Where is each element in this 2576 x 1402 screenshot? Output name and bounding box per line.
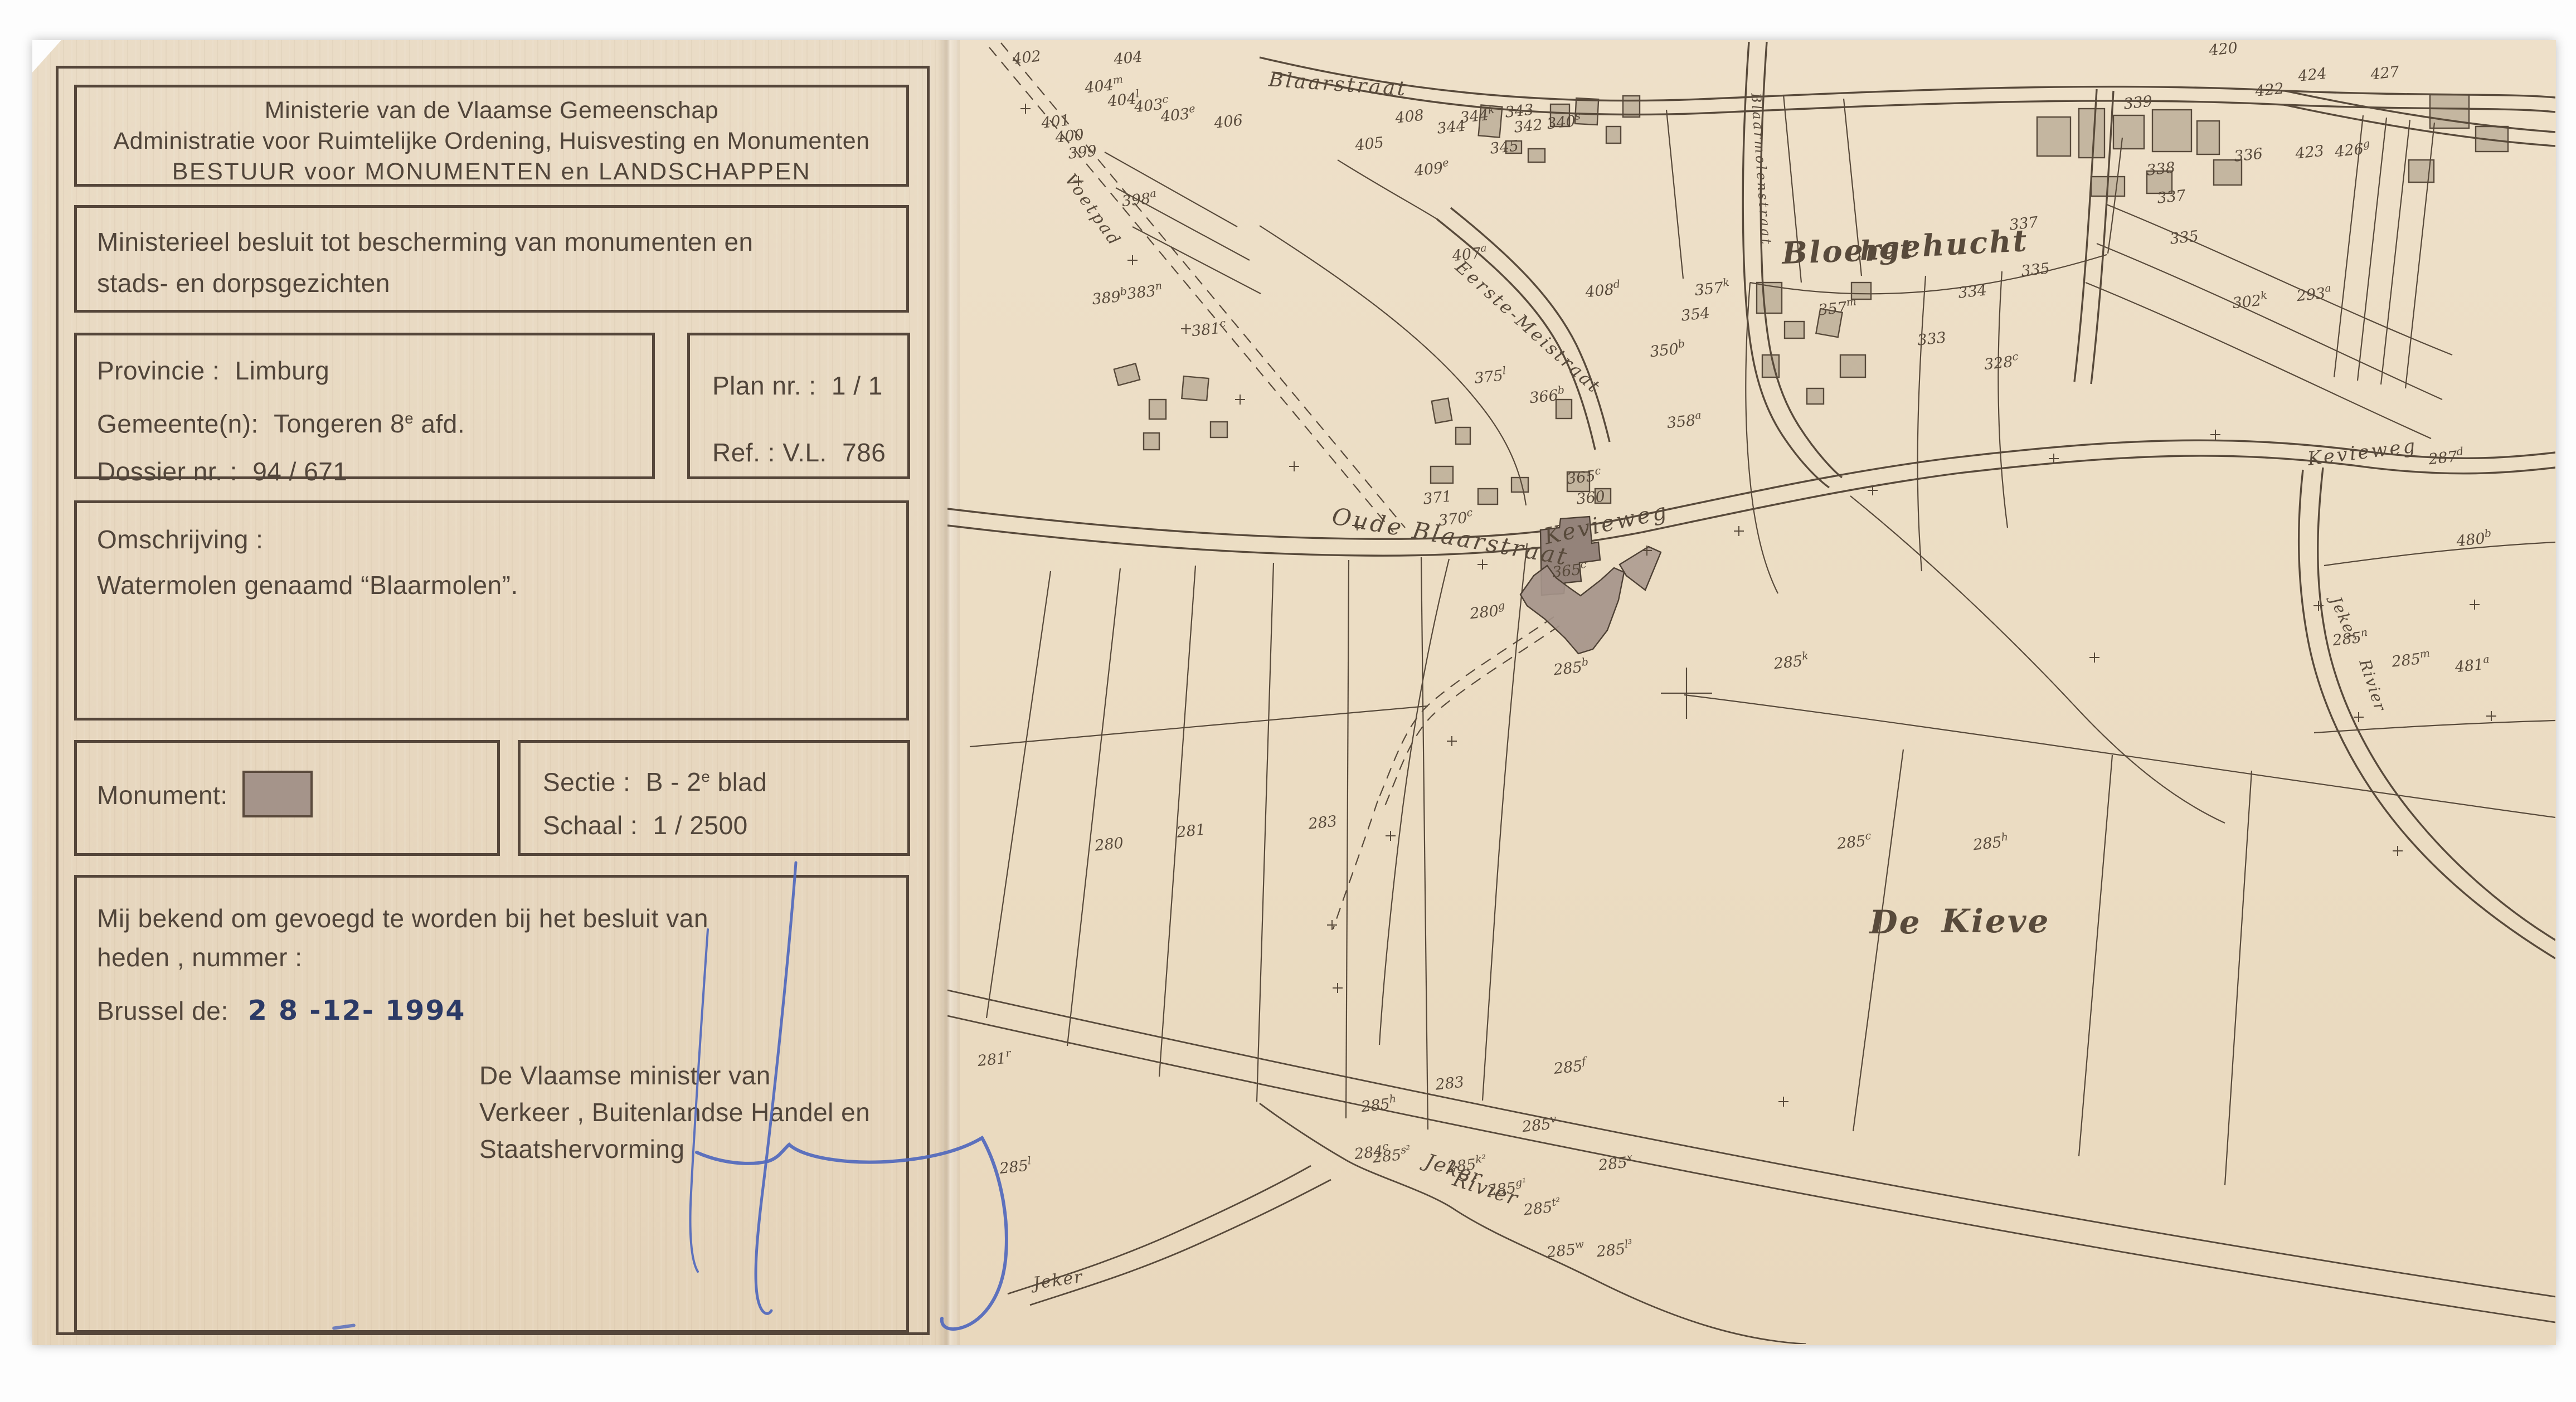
ministry-line1: Ministerie van de Vlaamse Gemeenschap xyxy=(77,95,906,126)
parcel-number: 406 xyxy=(1213,111,1243,132)
brussel-date-row: Brussel de: 2 8 -12- 1994 xyxy=(97,991,906,1030)
parcel-number: 285l³ xyxy=(1595,1238,1634,1261)
sectie-label: Sectie : xyxy=(543,767,630,796)
building-footprint xyxy=(1757,283,1782,313)
parcel-number: 285b xyxy=(1552,656,1590,679)
municipality-row: Gemeente(n): Tongeren 8e afd. xyxy=(97,395,652,447)
building-footprint xyxy=(1114,363,1140,385)
cross-mark xyxy=(1127,255,1138,265)
dossier-row: Dossier nr. : 94 / 671 xyxy=(97,447,652,495)
monument-label: Monument: xyxy=(97,781,228,810)
minister-line3: Staatshervorming xyxy=(479,1131,870,1167)
cross-mark xyxy=(1386,831,1396,841)
building-footprint xyxy=(1762,355,1779,377)
cross-mark xyxy=(1734,526,1744,536)
mill-race-wing xyxy=(1620,547,1661,590)
building-footprint xyxy=(2091,177,2125,196)
river-label: Jeker xyxy=(2325,591,2363,644)
ref-value: 786 xyxy=(842,438,886,467)
cadastral-map: 402404404m404l403c403e406401400399398a38… xyxy=(947,42,2555,1344)
cross-mark xyxy=(1181,324,1191,334)
plan-row: Plan nr. : 1 / 1 xyxy=(712,352,907,419)
place-label: gehucht xyxy=(1878,222,2029,266)
building-footprint xyxy=(1606,126,1621,143)
parcel-number: 424 xyxy=(2297,65,2328,85)
parcel-number: 281r xyxy=(976,1047,1013,1070)
parcel-number: 285w xyxy=(1545,1238,1585,1262)
decree-line1: Ministerieel besluit tot bescherming van… xyxy=(97,221,906,262)
sectie-sup: e xyxy=(701,768,710,785)
parcel-number: 328c xyxy=(1983,350,2020,373)
plan-box: Plan nr. : 1 / 1 Ref. : V.L. 786 xyxy=(687,333,910,479)
plan-label: Plan nr. : xyxy=(712,371,816,400)
parcel-number: 354 xyxy=(1680,304,1711,324)
municipality-suffix: afd. xyxy=(421,409,465,438)
parcel-number: 375l xyxy=(1473,364,1507,387)
province-label: Provincie : xyxy=(97,356,220,385)
building-footprint xyxy=(1144,433,1159,450)
parcel-number: 285k xyxy=(1772,650,1810,673)
street-label: Voetpad xyxy=(1061,171,1125,251)
ref-row: Ref. : V.L. 786 xyxy=(712,419,907,486)
building-footprint xyxy=(2037,117,2070,156)
cross-mark xyxy=(2210,430,2220,440)
minister-line2: Verkeer , Buitenlandse Handel en xyxy=(479,1094,870,1131)
parcel-number: 409e xyxy=(1413,157,1450,179)
cross-mark xyxy=(1327,920,1337,930)
parcel-number: 405 xyxy=(1354,134,1384,154)
building-footprint xyxy=(2476,126,2508,152)
place-label: Kieve xyxy=(1941,902,2050,940)
cross-mark xyxy=(1778,1097,1788,1107)
parcel-number: 285t² xyxy=(1522,1196,1562,1219)
cross-mark xyxy=(1477,559,1488,569)
parcel-number: 285m xyxy=(2390,648,2431,671)
schaal-label: Schaal : xyxy=(543,811,638,840)
place-label: Brussel de: xyxy=(97,996,229,1025)
parcel-number: 399 xyxy=(1067,142,1098,162)
parcel-number: 283 xyxy=(1434,1073,1465,1093)
building-footprint xyxy=(1432,398,1452,423)
parcel-number: 360 xyxy=(1576,488,1606,508)
ministry-line3: BESTUUR voor MONUMENTEN en LANDSCHAPPEN xyxy=(77,157,906,187)
parcel-number: 342 xyxy=(1513,116,1544,136)
schaal-row: Schaal : 1 / 2500 xyxy=(543,804,907,847)
parcel-number: 337 xyxy=(2156,187,2187,207)
sectie-suffix: blad xyxy=(718,767,767,796)
parcel-number: 404 xyxy=(1112,48,1143,68)
parcel-number: 427 xyxy=(2369,63,2400,83)
schaal-value: 1 / 2500 xyxy=(653,811,748,840)
parcel-number: 422 xyxy=(2254,80,2285,100)
parcel-number: 333 xyxy=(1917,329,1947,349)
parcel-number: 365c xyxy=(1566,465,1602,488)
sectie-row: Sectie : B - 2e blad xyxy=(543,755,907,804)
parcel-number: 285f xyxy=(1552,1055,1589,1078)
parcel-number: 335 xyxy=(2169,227,2200,247)
building-footprint xyxy=(2430,95,2469,128)
ministry-header-box: Ministerie van de Vlaamse Gemeenschap Ad… xyxy=(74,85,909,187)
boundary-cross-marks xyxy=(1020,104,2496,1107)
parcel-number: 350b xyxy=(1649,338,1686,361)
building-footprint xyxy=(1785,322,1804,338)
parcel-number: 335 xyxy=(2020,260,2051,280)
building-footprint xyxy=(1149,400,1166,419)
cross-mark xyxy=(2486,711,2496,721)
municipality-value: Tongeren 8 xyxy=(274,409,405,438)
signature-box: Mij bekend om gevoegd te worden bij het … xyxy=(74,875,909,1333)
parcel-numbers: 402404404m404l403c403e406401400399398a38… xyxy=(976,42,2492,1262)
building-footprint xyxy=(1528,149,1545,162)
parcel-number: 285l xyxy=(998,1155,1032,1177)
parcel-number: 357k xyxy=(1694,276,1731,299)
parcel-number: 281 xyxy=(1175,821,1206,841)
plan-value: 1 / 1 xyxy=(832,371,883,400)
parcel-number: 402 xyxy=(1011,47,1042,67)
description-value: Watermolen genaamd “Blaarmolen”. xyxy=(97,562,906,608)
section-scale-box: Sectie : B - 2e blad Schaal : 1 / 2500 xyxy=(518,740,910,856)
building-footprint xyxy=(2113,115,2144,149)
cross-mark xyxy=(1289,461,1299,471)
building-footprint xyxy=(1511,478,1528,492)
building-footprint xyxy=(1431,466,1453,483)
parcel-number: 371 xyxy=(1422,488,1453,508)
description-label: Omschrijving : xyxy=(97,517,906,562)
parcel-number: 408 xyxy=(1394,106,1425,126)
parcel-number: 336 xyxy=(2233,145,2264,165)
parcel-number: 283 xyxy=(1307,812,1338,833)
monument-legend-box: Monument: xyxy=(74,740,500,856)
parcel-number: 285h xyxy=(1971,831,2009,854)
building-footprint xyxy=(1211,422,1227,437)
parcel-number: 381c xyxy=(1190,317,1227,340)
parcel-number: 334 xyxy=(1957,281,1988,301)
cross-mark xyxy=(2354,712,2364,722)
municipality-sup: e xyxy=(405,410,414,427)
ref-label: Ref. : V.L. xyxy=(712,438,827,467)
parcel-number: 426g xyxy=(2333,138,2371,161)
parcel-number: 357m xyxy=(1817,296,1858,319)
building-footprint xyxy=(2409,160,2434,182)
cross-mark xyxy=(1020,104,1031,114)
street-label: Blaarmolenstraat xyxy=(1748,92,1774,247)
date-stamp: 2 8 -12- 1994 xyxy=(248,991,466,1030)
building-footprint xyxy=(1623,96,1640,117)
river-label: Rivier xyxy=(1450,1168,1522,1211)
building-footprint xyxy=(1182,376,1208,401)
cross-mark xyxy=(2089,653,2099,663)
province-value: Limburg xyxy=(235,356,330,385)
parcel-number: 285c xyxy=(1835,830,1873,853)
parcel-number: 339 xyxy=(2123,93,2154,113)
province-box: Provincie : Limburg Gemeente(n): Tongere… xyxy=(74,333,655,479)
cross-mark xyxy=(1235,395,1245,405)
parcel-number: 280g xyxy=(1468,600,1506,623)
note-line1: Mij bekend om gevoegd te worden bij het … xyxy=(97,899,906,938)
building-footprint xyxy=(2197,121,2219,154)
municipality-label: Gemeente(n): xyxy=(97,409,259,438)
parcel-number: 481a xyxy=(2453,653,2491,676)
building-footprint xyxy=(1478,489,1498,504)
place-label: De xyxy=(1868,903,1921,941)
street-label: Blaarstraat xyxy=(1267,68,1408,100)
street-label: Kevieweg xyxy=(1541,498,1671,549)
minister-line1: De Vlaamse minister van xyxy=(479,1057,870,1094)
cross-mark xyxy=(2393,846,2403,856)
parcel-number: 280 xyxy=(1093,834,1124,854)
parcel-number: 420 xyxy=(2208,42,2238,60)
building-footprint xyxy=(1807,388,1824,404)
ministry-line2: Administratie voor Ruimtelijke Ordening,… xyxy=(77,126,906,157)
parcel-number: 389b xyxy=(1091,285,1128,308)
parcel-number: 403e xyxy=(1159,103,1197,125)
decree-line2: stads- en dorpsgezichten xyxy=(97,262,906,304)
monument-color-swatch xyxy=(242,771,313,817)
minister-title: De Vlaamse minister van Verkeer , Buiten… xyxy=(479,1057,870,1167)
parcel-number: 287d xyxy=(2427,445,2465,469)
building-footprint xyxy=(2079,109,2104,158)
parcel-number: 423 xyxy=(2294,142,2325,162)
cross-mark xyxy=(2470,600,2480,610)
map-linework xyxy=(947,42,2555,1344)
parcel-number: 285v xyxy=(1520,1113,1558,1136)
cross-mark xyxy=(1447,736,1457,746)
cross-mark xyxy=(1333,983,1343,993)
sectie-value: B - 2 xyxy=(646,767,702,796)
river-label: Rivier xyxy=(2355,656,2390,714)
dossier-value: 94 / 671 xyxy=(252,457,347,486)
province-row: Provincie : Limburg xyxy=(97,347,652,395)
parcel-number: 338 xyxy=(2146,159,2176,179)
parcel-number: 345 xyxy=(1489,137,1520,157)
water-name-labels: JekerRivierJekerJekerRivier xyxy=(1029,591,2390,1294)
street-label: Kevieweg xyxy=(2306,435,2418,470)
building-footprint xyxy=(2152,110,2191,152)
note-line2: heden , nummer : xyxy=(97,938,906,977)
building-footprint xyxy=(1840,355,1865,377)
parcel-number: 302k xyxy=(2232,289,2268,312)
dossier-label: Dossier nr. : xyxy=(97,457,237,486)
description-box: Omschrijving : Watermolen genaamd “Blaar… xyxy=(74,500,909,721)
parcel-number: 383n xyxy=(1126,280,1163,303)
decree-box: Ministerieel besluit tot bescherming van… xyxy=(74,205,909,313)
building-footprint xyxy=(1456,427,1470,444)
parcel-number: 358a xyxy=(1666,409,1703,432)
parcel-number: 400 xyxy=(1054,126,1085,146)
parcel-number: 408d xyxy=(1583,278,1621,301)
